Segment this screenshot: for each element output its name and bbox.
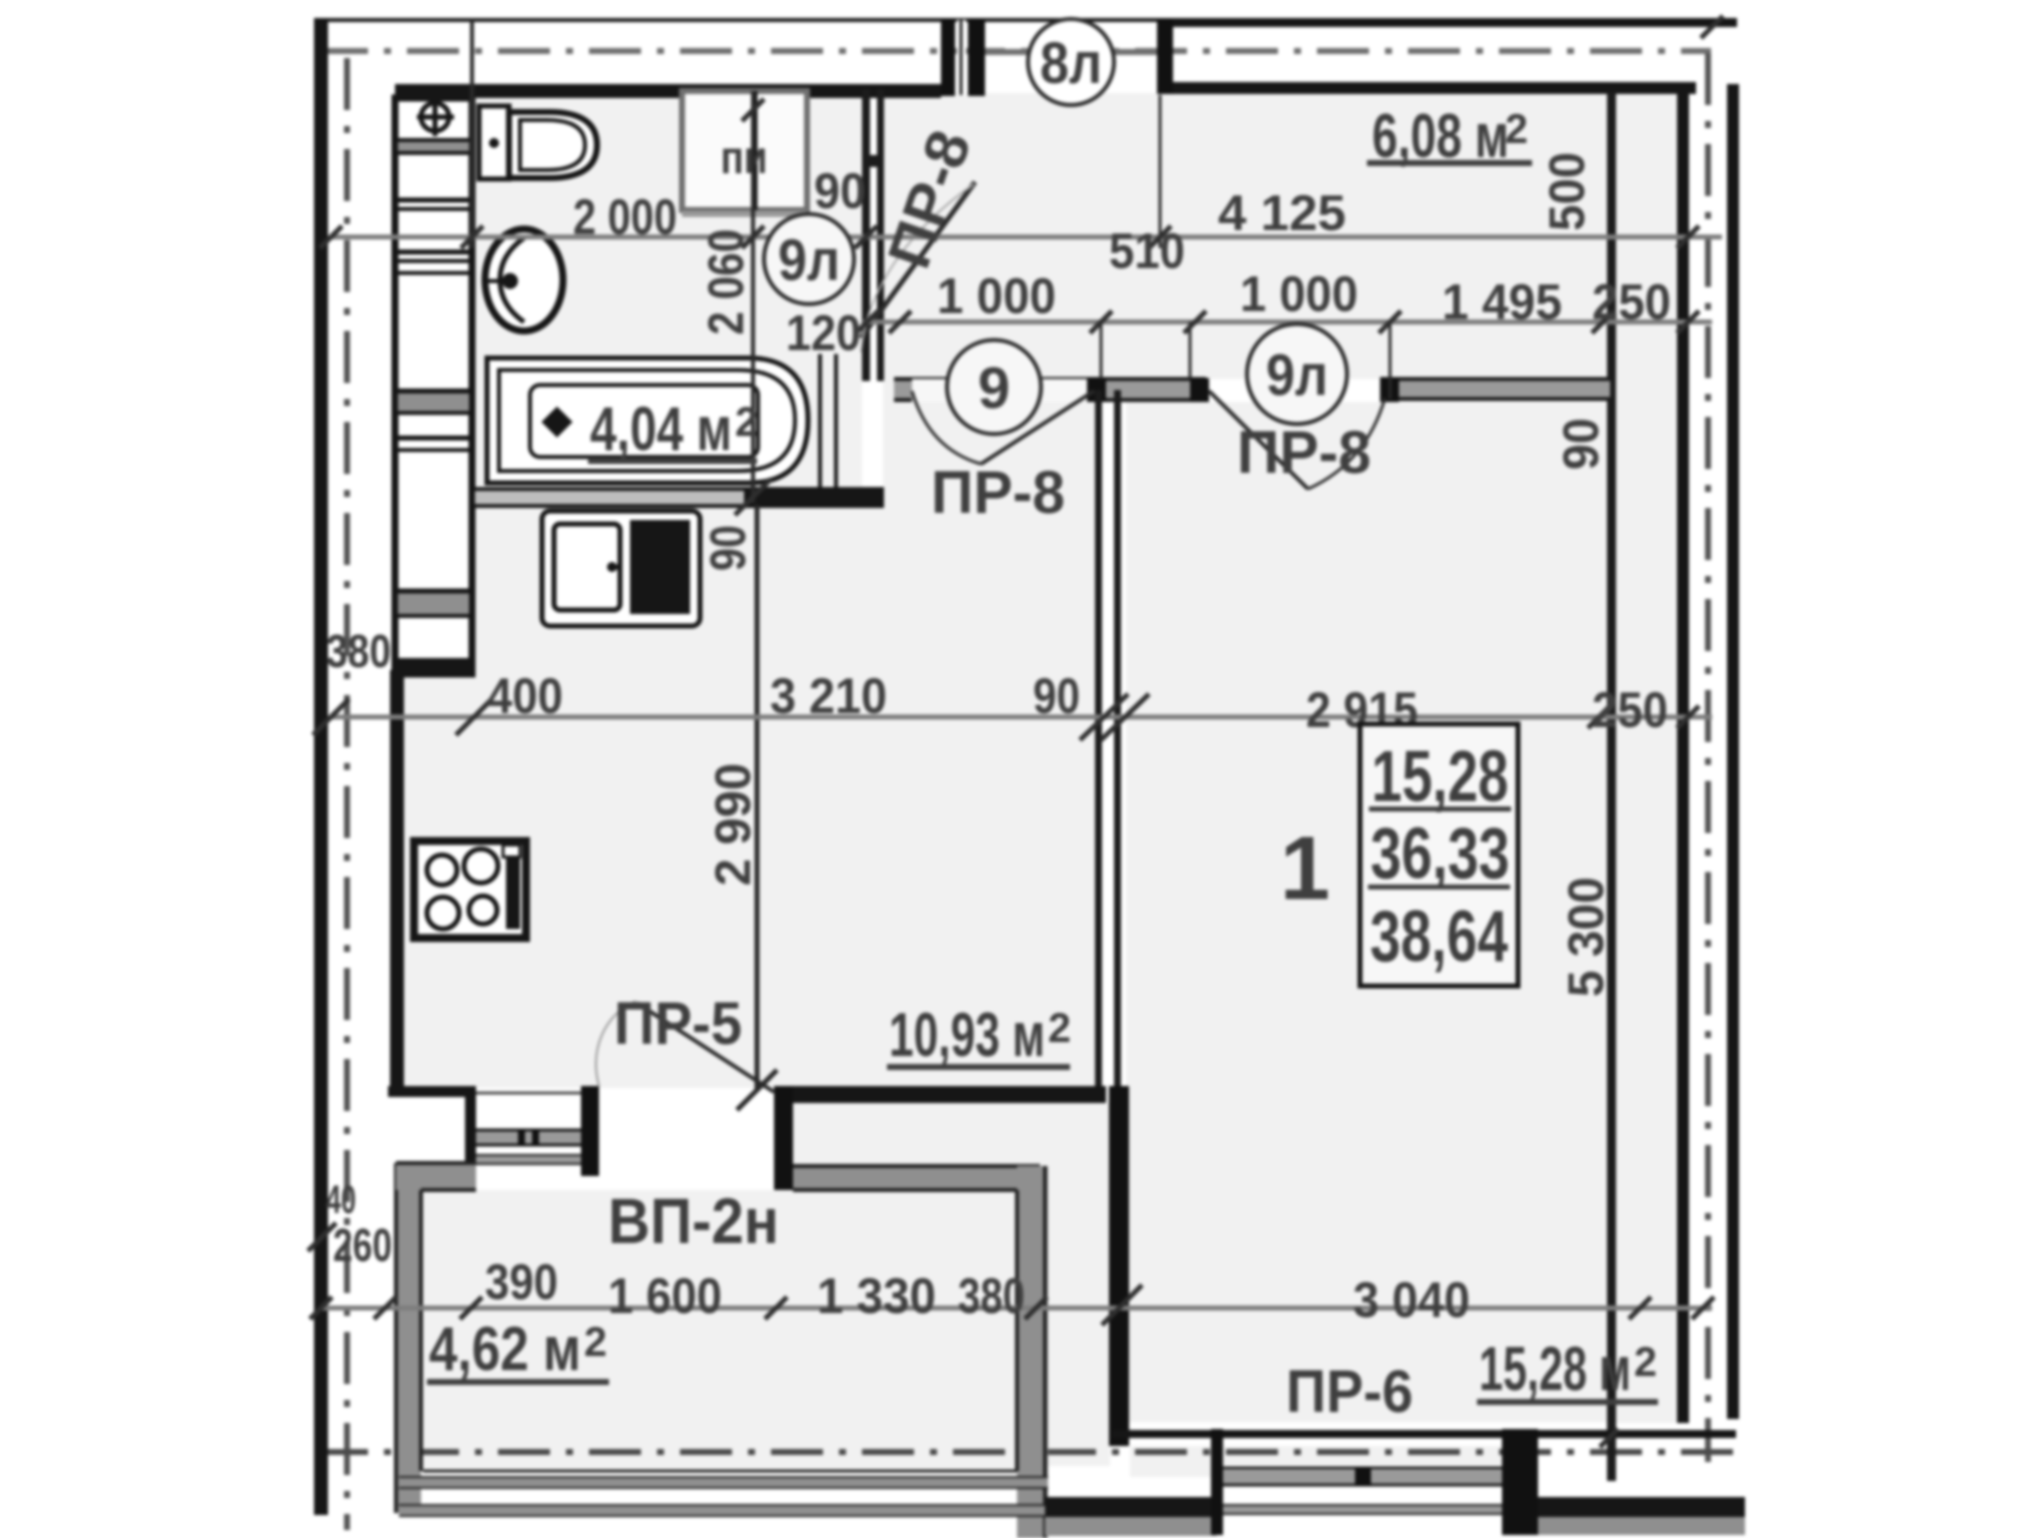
svg-text:250: 250 <box>1592 274 1671 330</box>
svg-text:400: 400 <box>487 668 563 724</box>
svg-text:ПР-6: ПР-6 <box>1286 1358 1413 1425</box>
svg-text:120: 120 <box>786 305 861 361</box>
svg-text:510: 510 <box>1109 223 1185 279</box>
svg-text:2: 2 <box>1505 105 1528 152</box>
svg-text:1 330: 1 330 <box>817 1268 936 1324</box>
svg-text:4,04 м: 4,04 м <box>590 395 732 464</box>
svg-text:ПР-8: ПР-8 <box>1237 419 1371 486</box>
svg-text:36,33: 36,33 <box>1371 814 1510 894</box>
svg-text:2: 2 <box>1048 1004 1071 1051</box>
svg-text:380: 380 <box>326 625 391 677</box>
svg-text:1 000: 1 000 <box>1240 266 1358 322</box>
svg-text:1 495: 1 495 <box>1442 274 1562 330</box>
svg-text:90: 90 <box>700 525 756 571</box>
svg-text:8л: 8л <box>1040 31 1102 96</box>
svg-text:40: 40 <box>326 1178 356 1222</box>
svg-text:2: 2 <box>584 1318 607 1365</box>
svg-text:15,28: 15,28 <box>1372 737 1509 817</box>
svg-text:10,93 м: 10,93 м <box>889 1001 1045 1070</box>
svg-text:ПР-8: ПР-8 <box>931 459 1065 526</box>
svg-text:500: 500 <box>1539 152 1595 231</box>
svg-text:2: 2 <box>735 398 758 445</box>
svg-text:380: 380 <box>958 1268 1025 1324</box>
svg-text:250: 250 <box>1592 682 1668 738</box>
svg-text:5 300: 5 300 <box>1558 877 1614 997</box>
svg-text:90: 90 <box>814 163 866 219</box>
svg-text:2 000: 2 000 <box>573 189 677 245</box>
svg-text:ВП-2н: ВП-2н <box>608 1185 779 1257</box>
svg-text:4,62 м: 4,62 м <box>429 1315 581 1384</box>
svg-text:9: 9 <box>978 356 1010 421</box>
svg-text:4 125: 4 125 <box>1218 185 1346 241</box>
svg-text:1 000: 1 000 <box>937 268 1056 324</box>
svg-text:3 210: 3 210 <box>770 668 887 724</box>
svg-text:90: 90 <box>1553 418 1609 470</box>
svg-text:2: 2 <box>1634 1338 1657 1385</box>
svg-text:9л: 9л <box>778 228 840 293</box>
svg-text:1 600: 1 600 <box>608 1268 722 1324</box>
svg-text:9л: 9л <box>1266 343 1328 408</box>
svg-text:260: 260 <box>333 1219 392 1271</box>
svg-text:390: 390 <box>485 1254 558 1310</box>
svg-text:ПР-5: ПР-5 <box>614 990 742 1057</box>
svg-text:1: 1 <box>1280 819 1330 919</box>
svg-text:3 040: 3 040 <box>1353 1272 1470 1328</box>
svg-text:38,64: 38,64 <box>1370 897 1508 977</box>
svg-text:пи: пи <box>721 131 768 183</box>
svg-text:90: 90 <box>1033 668 1080 724</box>
svg-text:2 990: 2 990 <box>705 763 761 886</box>
svg-text:15,28 м: 15,28 м <box>1479 1335 1631 1404</box>
svg-text:2 060: 2 060 <box>698 229 754 335</box>
